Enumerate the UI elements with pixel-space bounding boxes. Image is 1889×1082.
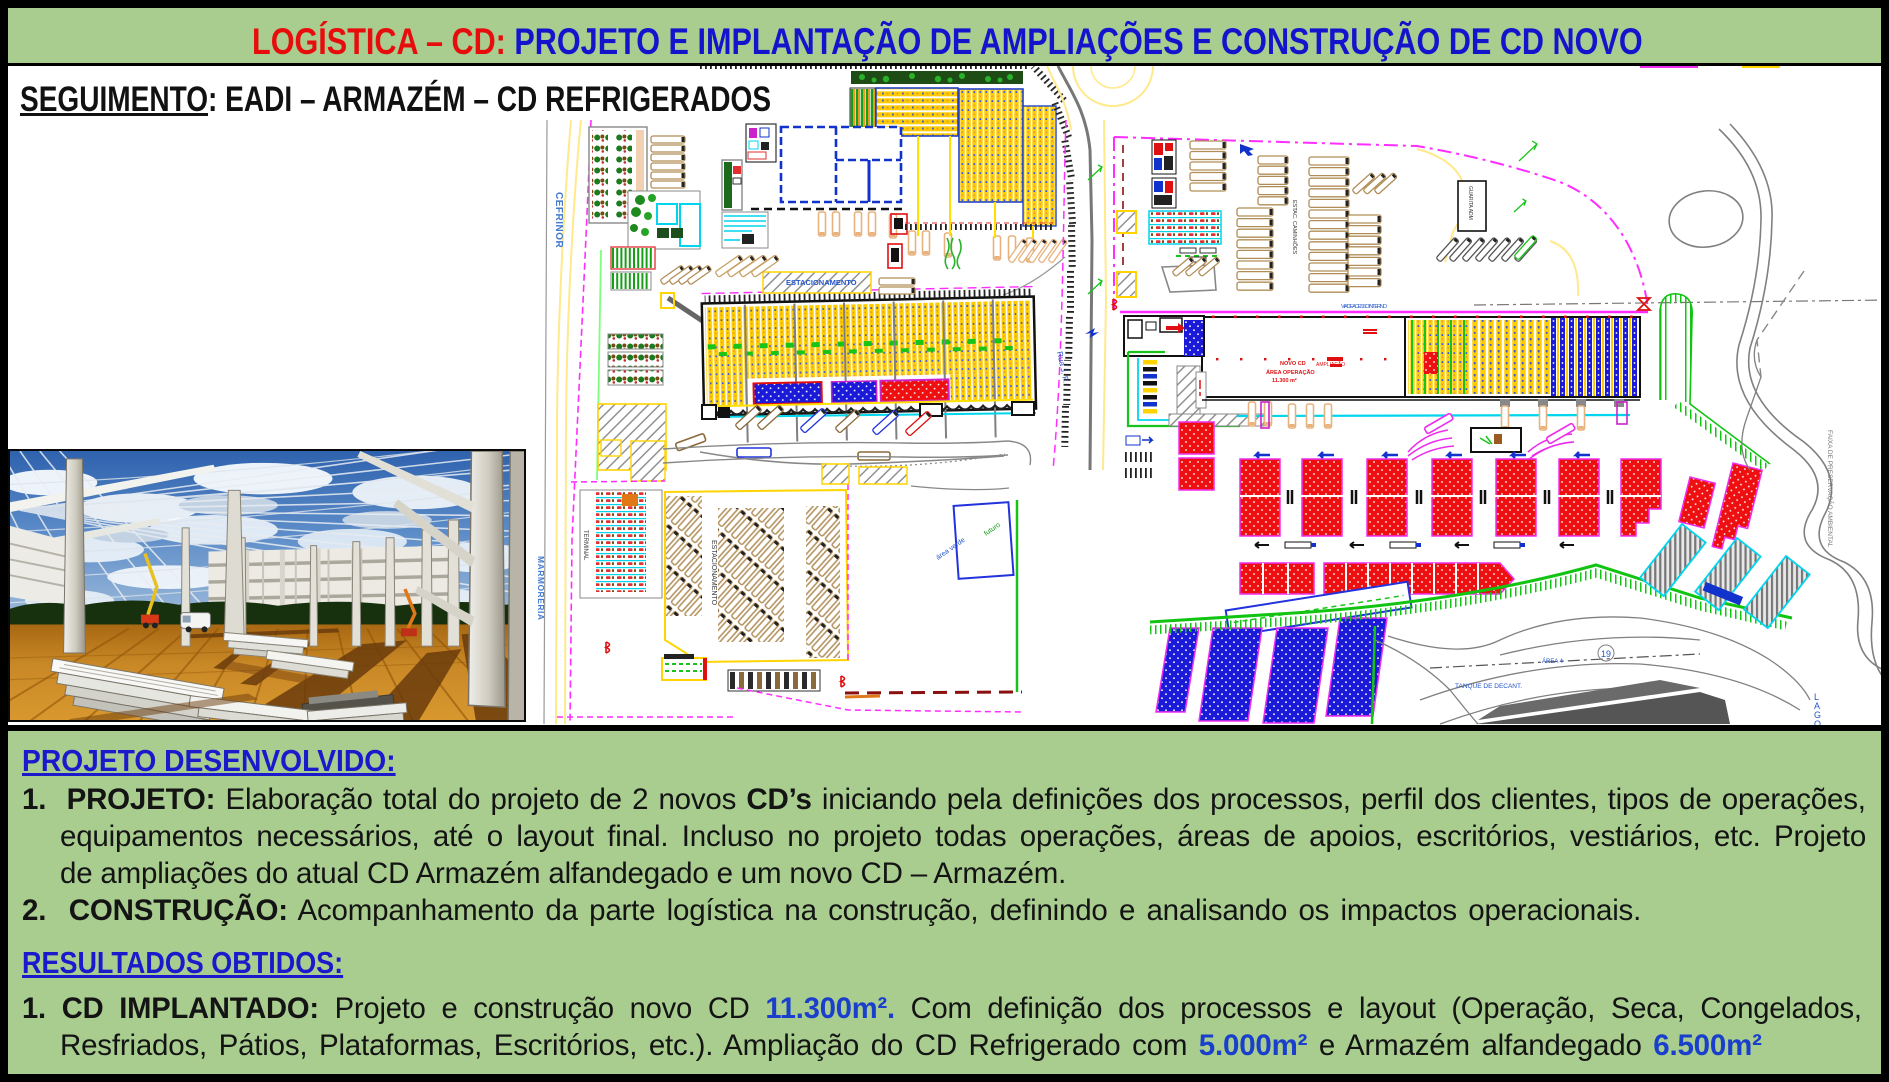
svg-text:ESTAC. CAMINHÕES: ESTAC. CAMINHÕES	[1291, 200, 1298, 255]
svg-text:CEFRINOR: CEFRINOR	[553, 192, 564, 249]
svg-text:FAIXA DE PRESERVAÇÃO AMBIENTAL: FAIXA DE PRESERVAÇÃO AMBIENTAL	[1826, 430, 1835, 548]
svg-text:GUARITA ADM: GUARITA ADM	[1467, 186, 1473, 220]
svg-text:VIA DE ACESSO INTERNO: VIA DE ACESSO INTERNO	[1341, 304, 1388, 310]
svg-text:TERMINAL: TERMINAL	[582, 530, 588, 561]
svg-text:O: O	[1814, 719, 1821, 725]
svg-text:NOVO CD: NOVO CD	[1280, 361, 1306, 367]
svg-text:MARMORERIA: MARMORERIA	[536, 556, 546, 621]
svg-text:11.300 m²: 11.300 m²	[1272, 377, 1297, 384]
svg-text:TANQUE DE DECANT.: TANQUE DE DECANT.	[1455, 683, 1522, 690]
svg-text:ESTACIONAMENTO: ESTACIONAMENTO	[786, 278, 857, 287]
svg-text:19: 19	[1601, 649, 1611, 659]
svg-text:ÁREA OPERAÇÃO: ÁREA OPERAÇÃO	[1266, 369, 1315, 376]
svg-text:ESTACIONAMENTO: ESTACIONAMENTO	[710, 540, 717, 606]
svg-text:ÁREA 4: ÁREA 4	[1542, 658, 1564, 665]
